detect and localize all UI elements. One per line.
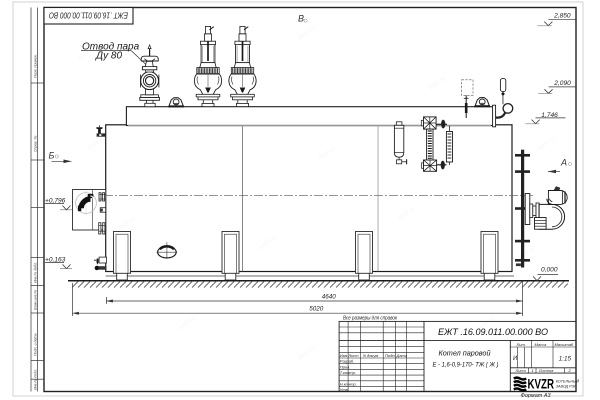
svg-text:kvzr.ru: kvzr.ru [297, 25, 317, 42]
svg-text:Б: Б [49, 151, 55, 161]
svg-text:Инв.№ дубл.: Инв.№ дубл. [33, 262, 37, 283]
svg-text:Дата: Дата [396, 353, 408, 358]
svg-text:Масштаб: Масштаб [555, 342, 574, 347]
svg-text:kvzr.ru: kvzr.ru [317, 145, 337, 162]
svg-text:Разраб.: Разраб. [340, 359, 354, 364]
svg-text:Лист: Лист [515, 368, 527, 373]
svg-text:Ду 80: Ду 80 [95, 51, 122, 62]
svg-text:ЕЖТ .16.09.011.00.000 ВО: ЕЖТ .16.09.011.00.000 ВО [49, 11, 128, 20]
svg-text:А: А [560, 158, 567, 168]
svg-text:kvzr.ru: kvzr.ru [297, 345, 317, 362]
svg-text:0,000: 0,000 [541, 266, 558, 273]
svg-text:Утв.: Утв. [340, 387, 349, 392]
svg-text:КОТЕЛЬНЫЙ: КОТЕЛЬНЫЙ [556, 380, 580, 384]
svg-text:Подп.: Подп. [385, 353, 396, 358]
svg-text:Т.контр.: Т.контр. [340, 370, 356, 375]
svg-text:2,850: 2,850 [553, 13, 571, 20]
svg-text:Изм Лист: Изм Лист [340, 353, 359, 358]
svg-text:kvzr.ru: kvzr.ru [117, 215, 137, 232]
svg-text:kvzr.ru: kvzr.ru [87, 135, 107, 152]
svg-text:Лит.: Лит. [516, 342, 526, 347]
svg-text:Перв. примен.: Перв. примен. [33, 54, 37, 78]
svg-text:Формат А3: Формат А3 [521, 393, 552, 399]
svg-text:Котел паровой: Котел паровой [439, 349, 491, 358]
svg-text:kvzr.ru: kvzr.ru [427, 75, 447, 92]
svg-text:4640: 4640 [322, 294, 337, 301]
svg-text:Взам.инв.№: Взам.инв.№ [33, 290, 37, 310]
svg-text:Справ. №: Справ. № [33, 136, 37, 152]
svg-text:Пров.: Пров. [340, 364, 351, 369]
svg-text:И: И [513, 356, 518, 362]
svg-text:kvzr.ru: kvzr.ru [397, 205, 417, 222]
svg-text:ЗАВОД РЭГ: ЗАВОД РЭГ [556, 385, 577, 389]
svg-text:1:15: 1:15 [559, 355, 572, 362]
svg-text:2: 2 [568, 368, 572, 373]
svg-text:В: В [298, 14, 304, 24]
svg-text:ЕЖТ .16.09.011.00.000 ВО: ЕЖТ .16.09.011.00.000 ВО [438, 327, 548, 337]
svg-text:Н.контр.: Н.контр. [340, 382, 357, 387]
svg-text:KVZR: KVZR [528, 377, 555, 392]
svg-text:Е - 1,6-0,9-170- ТЖ ( Ж ): Е - 1,6-0,9-170- ТЖ ( Ж ) [433, 362, 499, 369]
svg-text:Все размеры для справок: Все размеры для справок [343, 315, 397, 321]
svg-text:Листов: Листов [538, 368, 554, 373]
svg-text:2,090: 2,090 [553, 80, 571, 87]
svg-text:N докум.: N докум. [363, 353, 379, 358]
svg-text:Масса: Масса [535, 342, 548, 347]
svg-text:Инв.№ подл.: Инв.№ подл. [33, 369, 37, 390]
svg-text:kvzr.ru: kvzr.ru [537, 135, 557, 152]
svg-text:5020: 5020 [309, 306, 324, 313]
svg-text:kvzr.ru: kvzr.ru [177, 315, 197, 332]
svg-text:Подп. и дата: Подп. и дата [33, 334, 37, 357]
svg-text:1: 1 [532, 368, 534, 373]
svg-text:kvzr.ru: kvzr.ru [257, 235, 277, 252]
